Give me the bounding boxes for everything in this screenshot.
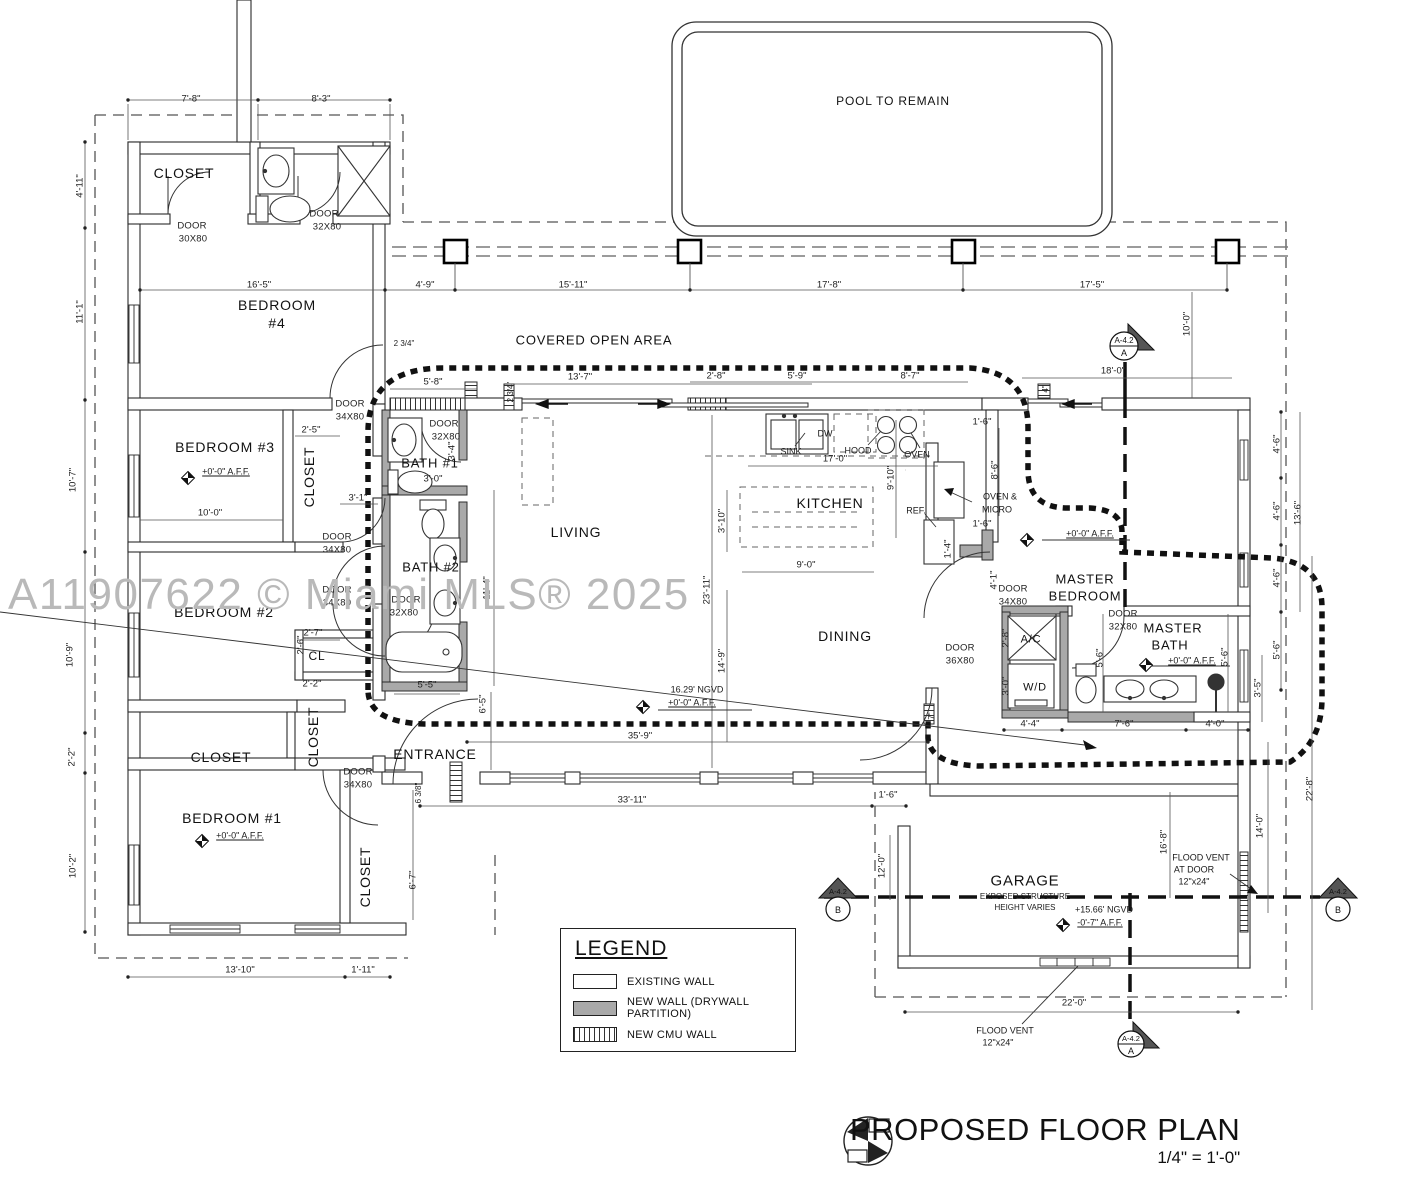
master-vanity (1104, 676, 1196, 702)
room-label: KITCHEN (796, 496, 863, 510)
room-label: GARAGE (991, 874, 1060, 889)
section-marker-a-top: A-4.2 A (1110, 324, 1154, 360)
dim-label: 5'-9" (788, 371, 807, 381)
legend-item-label: NEW CMU WALL (627, 1029, 717, 1041)
beam-line (392, 240, 1292, 290)
title-block: PROPOSED FLOOR PLAN 1/4" = 1'-0" (840, 1112, 1240, 1168)
dim-label: 14'-9" (717, 649, 727, 673)
dim-label: 9'-10" (886, 466, 896, 490)
dim-label: 7" (928, 712, 936, 719)
dim-label: 35'-9" (628, 731, 652, 741)
dim-label: 5'-6" (1272, 641, 1282, 660)
dim-label: 4'-9" (416, 280, 435, 290)
dim-label: 11'-1" (75, 300, 85, 324)
section-marker-b-right: A-4.2 B (1319, 878, 1357, 921)
dim-label: 16'-5" (247, 280, 271, 290)
door-label: 34X80 (323, 545, 351, 555)
marker-sheet: A-4.2 (1122, 1034, 1140, 1043)
dim-label: 2'-5" (302, 425, 321, 435)
dim-label: 1'-11" (351, 965, 375, 975)
dim-label: 3'-0" (424, 474, 443, 484)
door-label: 32X80 (432, 432, 460, 442)
room-label: CLOSET (191, 750, 252, 764)
dim-label: 12'-0" (877, 854, 887, 878)
dim-label: 4'-11" (75, 174, 85, 198)
door-label: 34X80 (344, 780, 372, 790)
door-label: 36X80 (946, 656, 974, 666)
dim-label: 2'-8" (1001, 629, 1011, 648)
note-label: 12"x24" (983, 1039, 1014, 1048)
legend-item-new-wall: NEW WALL (DRYWALL PARTITION) (573, 996, 795, 1020)
door-label: DOOR (429, 419, 458, 429)
dim-label: 2 3/4" (394, 340, 415, 348)
note-label: REF. (906, 507, 926, 516)
dim-label: 4" (1042, 385, 1050, 392)
door-label: DOOR (177, 221, 206, 231)
dim-label: 22'-0" (1062, 998, 1086, 1008)
dim-label: 4'-6" (1272, 502, 1282, 521)
dim-label: 13'-10" (225, 965, 254, 975)
new-wall-swatch (573, 1001, 617, 1016)
dim-label: 5'-6" (1095, 649, 1105, 668)
plan-title: PROPOSED FLOOR PLAN (850, 1112, 1240, 1148)
dimension-ticks (83, 98, 1282, 1013)
door-label: DOOR (335, 399, 364, 409)
note-label: +0'-0" A.F.F. (1168, 657, 1216, 666)
dim-label: 17'-0" (823, 454, 847, 464)
note-label: +0'-0" A.F.F. (1066, 530, 1114, 539)
note-label: 12"x24" (1179, 878, 1210, 887)
toilet (420, 500, 446, 539)
dim-label: 18'-0" (1101, 366, 1125, 376)
room-label: MASTER (1056, 573, 1115, 586)
room-label: BEDROOM #3 (175, 440, 275, 454)
floor-plan-canvas: A-4.2 A A-4.2 B A-4.2 B A-4.2 A (0, 0, 1416, 1178)
dim-label: 13'-7" (568, 372, 592, 382)
room-label: BEDROOM (1049, 590, 1122, 603)
existing-wall-swatch (573, 974, 617, 989)
door-label: DOOR (1108, 609, 1137, 619)
dim-label: 5'-6" (1220, 648, 1230, 667)
legend-item-label: EXISTING WALL (627, 976, 715, 988)
room-label: COVERED OPEN AREA (516, 334, 673, 347)
room-label: LIVING (551, 525, 602, 539)
marker-id: B (835, 905, 841, 915)
room-label: BEDROOM (238, 298, 316, 312)
marker-sheet: A-4.2 (1114, 336, 1134, 345)
cmu-wall-swatch (573, 1027, 617, 1042)
note-label: FLOOD VENT (1172, 854, 1230, 863)
room-label: POOL TO REMAIN (836, 95, 950, 107)
room-label: BATH (1152, 639, 1189, 652)
dim-label: 7'-6" (1115, 719, 1134, 729)
marker-id: B (1335, 905, 1341, 915)
toilet (256, 196, 310, 222)
master-toilet (1076, 664, 1096, 703)
dim-label: 2 3/4" (507, 382, 515, 403)
dim-label: 5'-5" (418, 680, 437, 690)
note-label: OVEN (904, 451, 930, 460)
marker-sheet: A-4.2 (829, 887, 847, 896)
dim-label: 13'-6" (1293, 501, 1303, 525)
dim-label: 6'-5" (478, 695, 488, 714)
dim-label: 10'-0" (198, 508, 222, 518)
note-label: FLOOD VENT (976, 1027, 1034, 1036)
dim-label: 4'-6" (1272, 435, 1282, 454)
marker-id: A (1128, 1046, 1134, 1056)
room-label: CL (309, 650, 326, 662)
door-label: 32X80 (1109, 622, 1137, 632)
note-label: MICRO (982, 506, 1012, 515)
door-label: 34X80 (336, 412, 364, 422)
dim-label: 10'-2" (68, 854, 78, 878)
dim-label: 2'-7" (304, 628, 323, 638)
new-drywall-walls (382, 410, 1194, 722)
dim-label: 6 3/8" (415, 783, 423, 804)
room-label: W/D (1023, 683, 1047, 694)
dim-label: 9'-0" (797, 560, 816, 570)
note-label: +0'-0" A.F.F. (216, 832, 264, 841)
room-label: CLOSET (302, 447, 316, 508)
dim-label: 2'-6" (296, 636, 306, 655)
legend-item-cmu-wall: NEW CMU WALL (573, 1027, 795, 1042)
door-label: DOOR (998, 584, 1027, 594)
bathtub (386, 632, 462, 672)
dim-label: 8'-7" (901, 371, 920, 381)
note-label: AT DOOR (1174, 866, 1214, 875)
dim-label: 6'-7" (408, 871, 418, 890)
note-label: DW (818, 430, 833, 439)
room-label: #4 (268, 316, 285, 330)
door-label: 34X80 (999, 597, 1027, 607)
new-cmu-walls (390, 382, 1248, 932)
dim-label: 1'-6" (973, 519, 992, 529)
marker-id: A (1121, 348, 1127, 358)
dim-label: 1'-6" (879, 790, 898, 800)
door-label: DOOR (343, 767, 372, 777)
legend-item-label: NEW WALL (DRYWALL PARTITION) (627, 996, 795, 1020)
dim-label: 3'-0" (1001, 677, 1011, 696)
dim-label: 15'-11" (559, 280, 588, 290)
dim-label: 4'-1" (989, 571, 999, 590)
dim-label: 10'-9" (65, 643, 75, 667)
room-label: CLOSET (358, 847, 372, 908)
dim-label: 17'-8" (817, 280, 841, 290)
watermark: A11907622 © Miami MLS® 2025 (8, 570, 690, 620)
dim-label: 5'-8" (424, 377, 443, 387)
room-label: CLOSET (154, 166, 215, 180)
dim-label: 23'-11" (702, 576, 712, 605)
dim-label: 16'-8" (1159, 830, 1169, 854)
note-label: +15.66' NGVD (1075, 906, 1133, 915)
dim-label: 2'-2" (67, 748, 77, 767)
door-label: DOOR (322, 532, 351, 542)
door-label: DOOR (309, 209, 338, 219)
lamp (1208, 674, 1224, 712)
dim-label: 2'-8" (707, 371, 726, 381)
room-label: DINING (818, 629, 872, 643)
dim-label: 4'-4" (1021, 719, 1040, 729)
dim-label: 8'-6" (990, 461, 1000, 480)
dim-label: 4'-6" (1272, 569, 1282, 588)
dimension-lines (85, 100, 1312, 1012)
note-label: -0'-7" A.F.F. (1077, 919, 1122, 928)
dim-label: 33'-11" (618, 795, 647, 805)
pool (672, 22, 1112, 236)
dim-label: 3'-10" (717, 509, 727, 533)
columns (444, 240, 1239, 263)
room-label: A/C (1021, 635, 1042, 646)
dim-label: 1'-6" (973, 417, 992, 427)
section-marker-a-bottom: A-4.2 A (1118, 1022, 1159, 1057)
marker-sheet: A-4.2 (1329, 887, 1347, 896)
note-label: EXPOSED STRUCTURE (980, 893, 1070, 901)
dim-label: 3'-5" (1253, 679, 1263, 698)
dim-label: 2'-2" (303, 679, 322, 689)
note-label: +0'-0" A.F.F. (668, 699, 716, 708)
cooktop (878, 417, 917, 454)
room-label: CLOSET (306, 707, 320, 768)
note-label: +0'-0" A.F.F. (202, 468, 250, 477)
room-label: MASTER (1144, 622, 1203, 635)
door-label: DOOR (945, 643, 974, 653)
room-label: ENTRANCE (393, 747, 476, 761)
dim-label: 7'-8" (182, 94, 201, 104)
dim-label: 22'-8" (1305, 777, 1315, 801)
dim-label: 10'-0" (1182, 312, 1192, 336)
dim-label: 4'-0" (1206, 719, 1225, 729)
plan-scale: 1/4" = 1'-0" (850, 1148, 1240, 1168)
dim-label: 14'-0" (1255, 814, 1265, 838)
note-label: SINK (780, 448, 801, 457)
dim-label: 3'-4" (447, 442, 457, 461)
section-marker-b-left: A-4.2 B (819, 878, 857, 921)
note-label: 16.29' NGVD (671, 686, 724, 695)
dim-label: 17'-5" (1080, 280, 1104, 290)
legend-item-existing-wall: EXISTING WALL (573, 974, 795, 989)
door-label: 32X80 (313, 222, 341, 232)
legend-title: LEGEND (575, 937, 667, 961)
door-label: 30X80 (179, 234, 207, 244)
sink (258, 148, 294, 194)
covered-area-boundary (368, 368, 1322, 766)
dim-label: 1'-4" (943, 540, 953, 559)
dim-label: 10'-7" (68, 468, 78, 492)
note-label: OVEN & (983, 493, 1017, 502)
room-label: BEDROOM #1 (182, 811, 282, 825)
legend-box: LEGEND EXISTING WALL NEW WALL (DRYWALL P… (560, 928, 796, 1052)
dim-label: 8'-3" (312, 94, 331, 104)
dim-label: 3'-1" (349, 493, 368, 503)
note-label: HEIGHT VARIES (994, 904, 1055, 912)
note-label: HOOD (845, 447, 872, 456)
